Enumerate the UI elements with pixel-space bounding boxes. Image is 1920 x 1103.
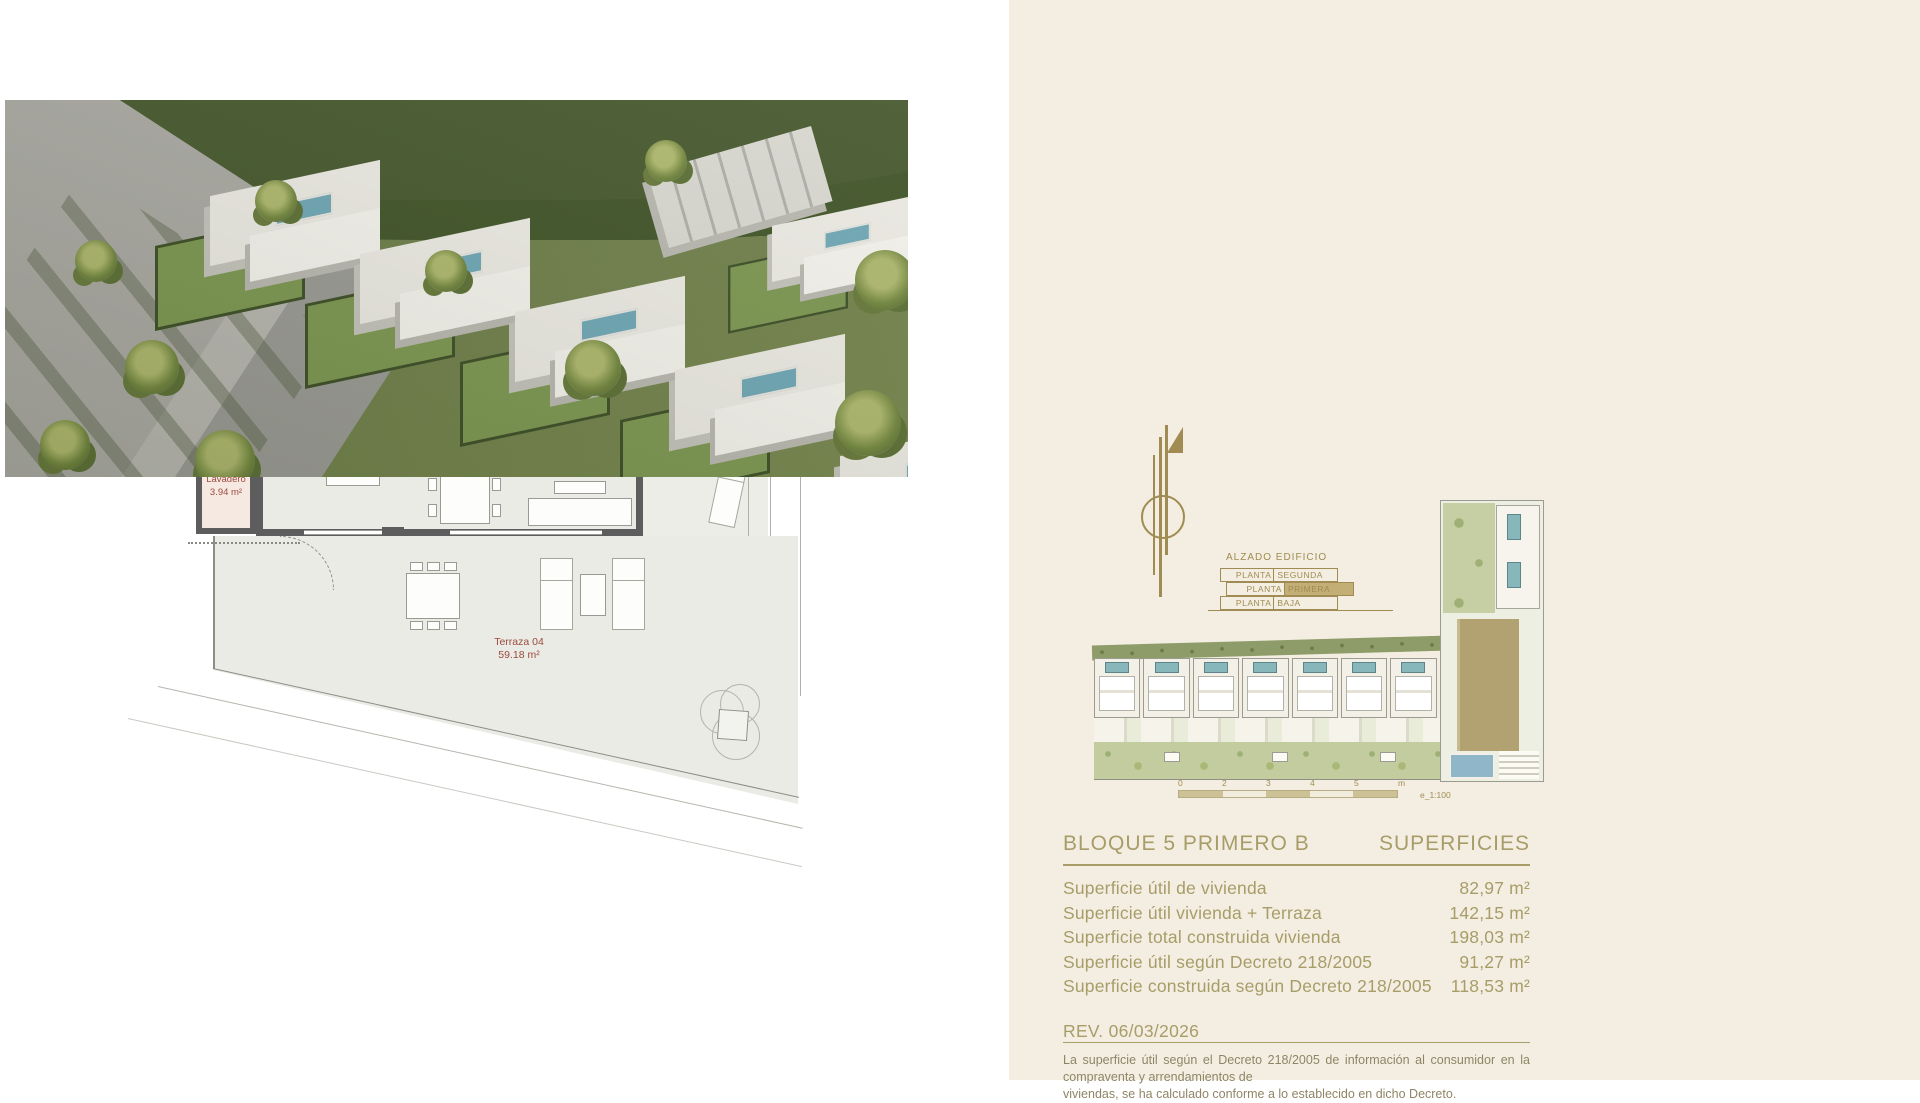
scale-tick-label: 5 <box>1354 778 1398 788</box>
unit-title: BLOQUE 5 PRIMERO B <box>1063 832 1310 856</box>
chair <box>427 621 440 630</box>
scale-bar: 02345m e_1:100 <box>1178 778 1508 804</box>
siteplan-unit <box>1341 658 1387 718</box>
surface-label: Superficie construida según Decreto 218/… <box>1063 976 1432 997</box>
disclaimer: La superficie útil según el Decreto 218/… <box>1063 1042 1530 1103</box>
scale-tick-label: 3 <box>1266 778 1310 788</box>
slider-door <box>450 530 602 535</box>
scale-tick-label: m <box>1398 778 1442 788</box>
side-table <box>580 574 606 616</box>
siteplan-right-block <box>1440 500 1544 782</box>
surface-value: 118,53 m² <box>1451 976 1530 997</box>
surface-value: 198,03 m² <box>1449 927 1530 948</box>
terrace-edge-left <box>213 536 215 669</box>
surface-row: Superficie construida según Decreto 218/… <box>1063 976 1530 1001</box>
surface-row: Superficie total construida vivienda 198… <box>1063 927 1530 952</box>
sun-lounger <box>612 558 645 630</box>
surface-row: Superficie útil vivienda + Terraza 142,1… <box>1063 903 1530 928</box>
surface-row: Superficie útil según Decreto 218/2005 9… <box>1063 952 1530 977</box>
disclaimer-line2: viviendas, se ha calculado conforme a lo… <box>1063 1086 1530 1103</box>
siteplan-green-band <box>1092 635 1484 661</box>
surface-label: Superficie útil de vivienda <box>1063 878 1267 899</box>
surface-label: Superficie útil vivienda + Terraza <box>1063 903 1322 924</box>
site-plan <box>1092 500 1547 800</box>
scale-tick-label: 2 <box>1222 778 1266 788</box>
outdoor-table <box>406 573 460 619</box>
scale-bar-segments <box>1178 790 1398 798</box>
scale-tick-label: 4 <box>1310 778 1354 788</box>
chair <box>492 478 501 491</box>
tree <box>700 684 764 764</box>
siteplan-unit <box>1143 658 1189 718</box>
coffee-table <box>554 481 606 494</box>
surface-value: 82,97 m² <box>1459 878 1530 899</box>
chair <box>492 504 501 517</box>
room-label-terraza: Terraza 0459.18 m² <box>494 636 544 661</box>
surface-label: Superficie útil según Decreto 218/2005 <box>1063 952 1372 973</box>
surface-value: 91,27 m² <box>1459 952 1530 973</box>
chair <box>444 562 457 571</box>
community-pool <box>1449 753 1495 779</box>
revision-date: REV. 06/03/2026 <box>1063 1021 1530 1042</box>
siteplan-unit <box>1193 658 1239 718</box>
siteplan-garden <box>1094 742 1486 780</box>
chair <box>410 562 423 571</box>
aerial-render-photo <box>5 100 908 477</box>
chair <box>427 562 440 571</box>
sofa <box>528 498 632 526</box>
divider <box>1063 1042 1530 1043</box>
siteplan-paths <box>1094 718 1486 742</box>
divider <box>1063 864 1530 866</box>
chair <box>410 621 423 630</box>
siteplan-unit <box>1292 658 1338 718</box>
disclaimer-line1: La superficie útil según el Decreto 218/… <box>1063 1052 1530 1086</box>
surface-summary: BLOQUE 5 PRIMERO B SUPERFICIES Superfici… <box>1063 832 1530 1042</box>
slider-door <box>304 530 382 535</box>
surfaces-header: SUPERFICIES <box>1379 832 1530 856</box>
chair <box>428 504 437 517</box>
chair <box>428 478 437 491</box>
siteplan-unit <box>1094 658 1140 718</box>
surface-value: 142,15 m² <box>1449 903 1530 924</box>
scale-ratio-label: e_1:100 <box>1420 790 1451 800</box>
siteplan-unit <box>1390 658 1436 718</box>
siteplan-unit <box>1242 658 1288 718</box>
sun-lounger <box>540 558 573 630</box>
scale-tick-label: 0 <box>1178 778 1222 788</box>
room-label-lavadero: Lavadero3.94 m² <box>206 474 246 499</box>
chair <box>444 621 457 630</box>
surface-row: Superficie útil de vivienda 82,97 m² <box>1063 878 1530 903</box>
surface-label: Superficie total construida vivienda <box>1063 927 1341 948</box>
